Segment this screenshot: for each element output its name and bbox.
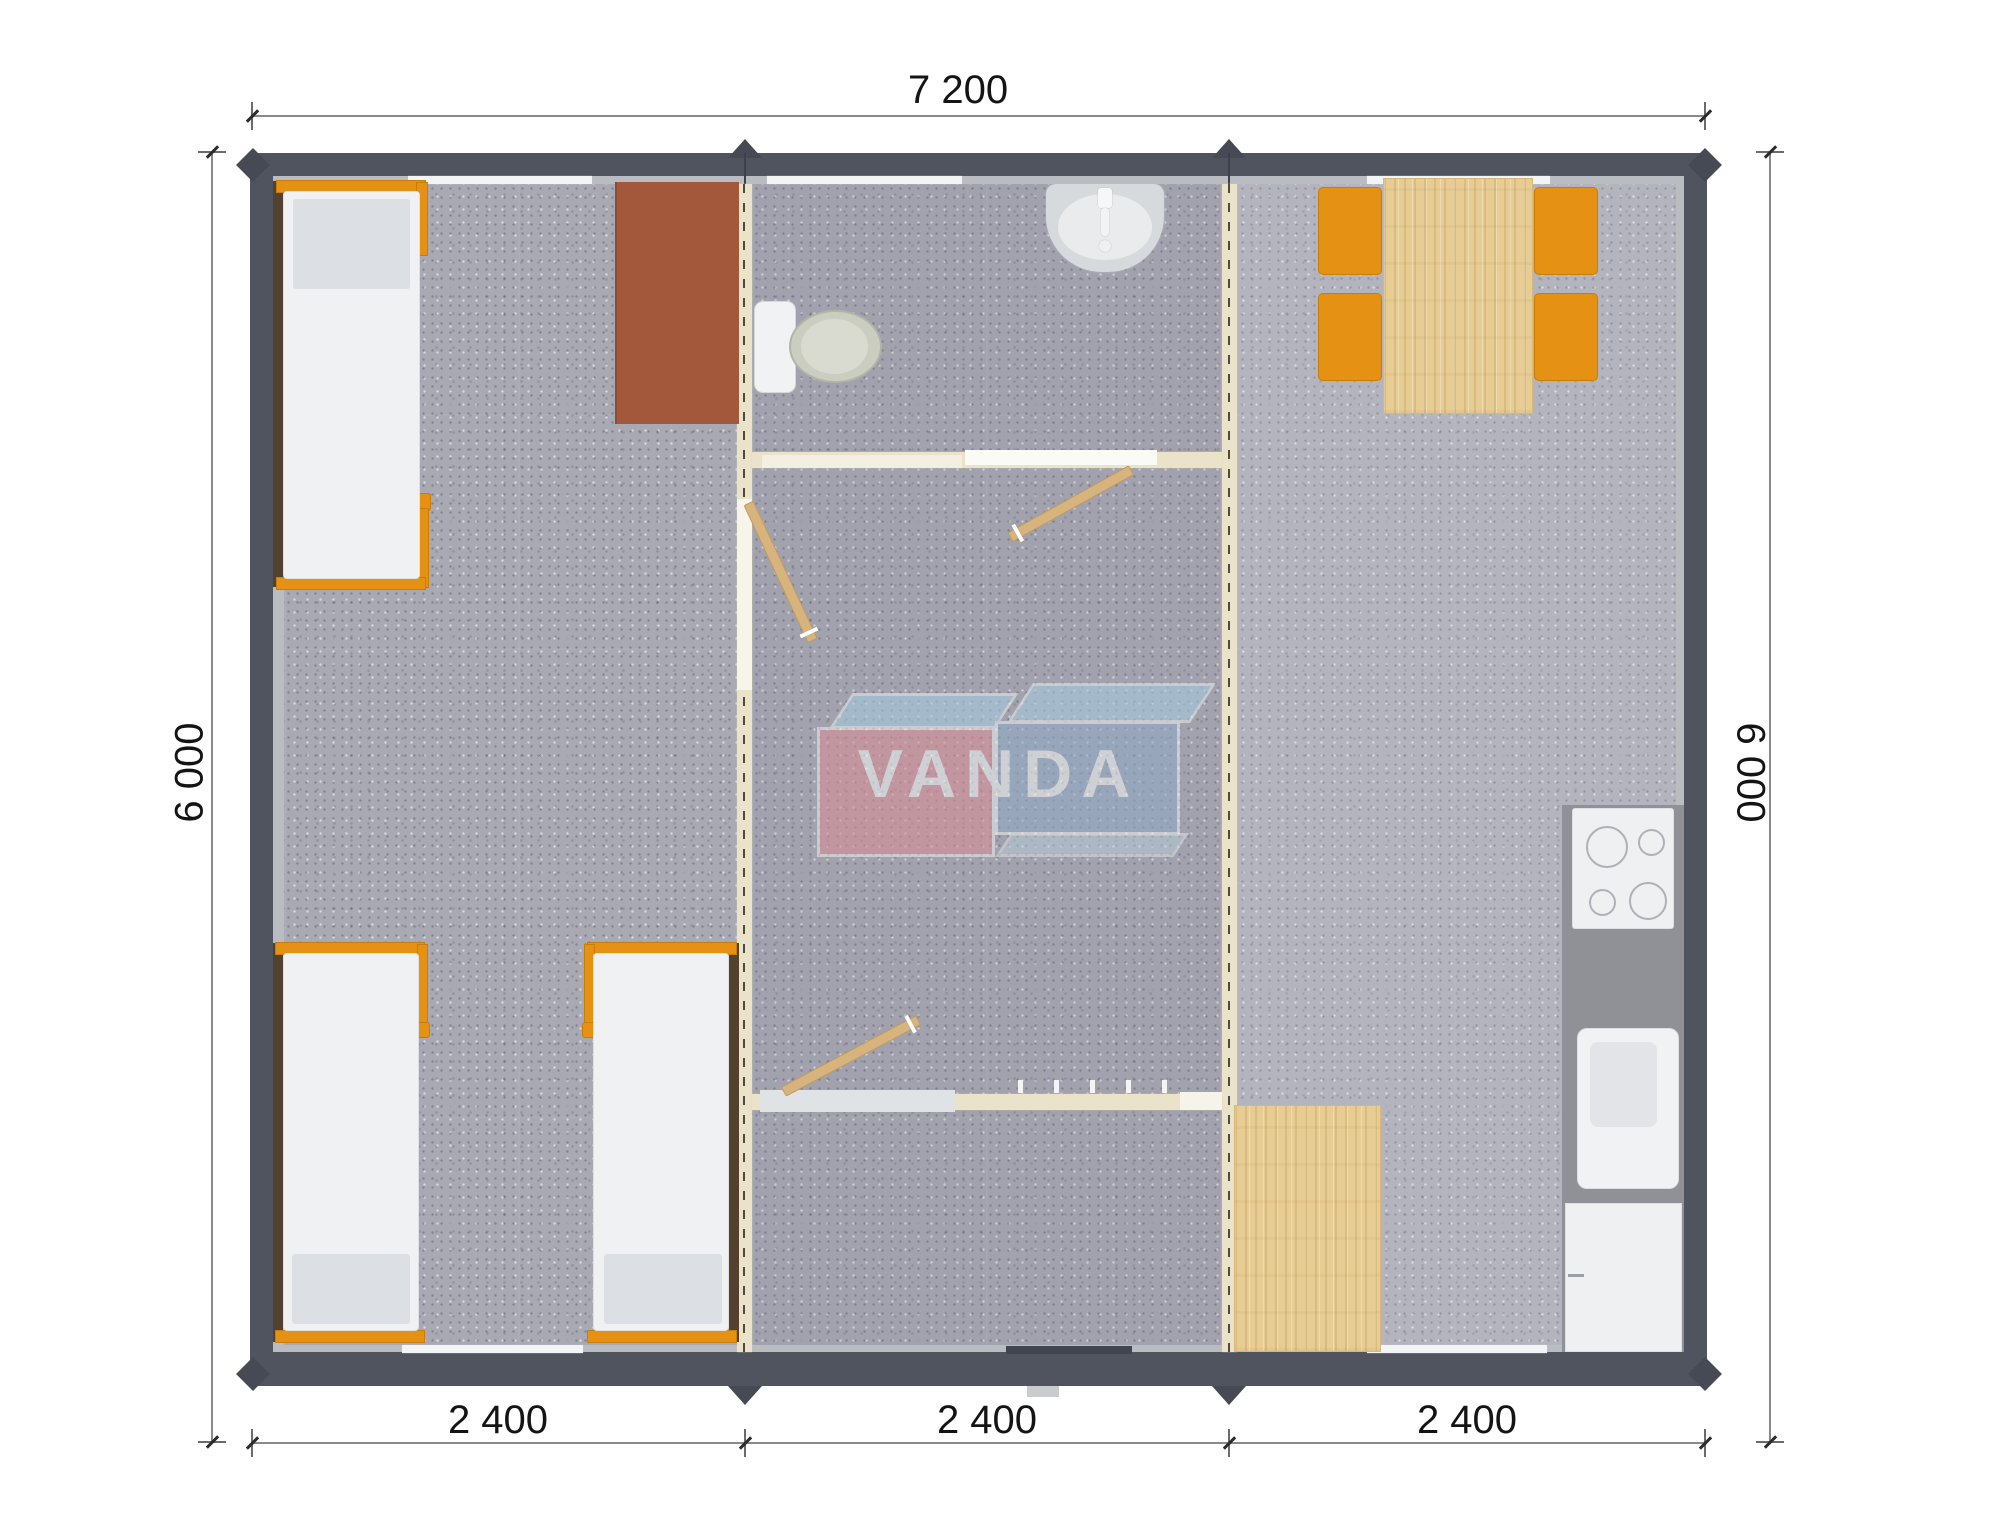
logo-box-top-face	[829, 693, 1018, 729]
partition-left-stud-line	[743, 184, 745, 1352]
module-joint-line	[744, 153, 746, 184]
cooktop	[1572, 808, 1674, 929]
pillow	[293, 199, 410, 289]
bed-headboard-strip	[729, 943, 739, 1342]
bed-frame-bottom-rail	[275, 1330, 425, 1343]
desk	[615, 182, 739, 424]
dining-chair	[1534, 293, 1598, 381]
dimension-label-bottom-3: 2 400	[1397, 1398, 1537, 1443]
logo-text: VANDA	[815, 735, 1182, 813]
toilet-seat	[801, 319, 868, 374]
dimension-label-left: 6 000	[168, 713, 213, 833]
wall-right	[1684, 153, 1707, 1386]
bathroom-wall-track	[762, 455, 962, 468]
window-top-left-room	[408, 176, 592, 184]
door-opening-left-partition	[737, 499, 752, 690]
kitchen-sink	[1577, 1028, 1679, 1189]
bed-headboard-strip	[273, 943, 283, 1342]
module-joint-line	[1228, 153, 1230, 184]
window-bottom-right-room	[1367, 1345, 1547, 1353]
bed-bottom-middle	[583, 940, 739, 1345]
floor-plan: 7 200 6 000 6 000 2 400 2 400 2 400	[0, 0, 2000, 1537]
faucet	[1098, 188, 1112, 208]
wall-top	[250, 153, 1707, 176]
dining-chair	[1534, 187, 1598, 275]
burner-small	[1638, 829, 1665, 856]
module-joint-marker	[728, 1386, 762, 1405]
coat-hook	[1090, 1080, 1095, 1093]
vanda-logo-watermark: VANDA	[815, 683, 1182, 861]
burner-large	[1586, 826, 1628, 868]
hall-wall-cap	[1180, 1092, 1222, 1110]
window-bottom-left-room	[402, 1345, 583, 1353]
entrance-step	[1027, 1386, 1059, 1397]
coat-hook	[1054, 1080, 1059, 1093]
dimension-line	[252, 115, 1705, 117]
bed-frame-bottom-rail	[587, 1330, 737, 1343]
mattress	[283, 191, 420, 579]
partition-right-stud-line	[1228, 184, 1230, 1352]
bed-bottom-left	[273, 940, 429, 1345]
dimension-label-top: 7 200	[908, 68, 1008, 113]
entrance-door-sill	[1006, 1346, 1132, 1354]
dimension-label-bottom-2: 2 400	[917, 1398, 1057, 1443]
coat-hook	[1162, 1080, 1167, 1093]
drain	[1099, 240, 1111, 252]
mattress	[283, 953, 419, 1331]
burner-large	[1629, 882, 1667, 920]
dimension-label-right: 6 000	[1728, 713, 1773, 833]
module-joint-marker	[1212, 1386, 1246, 1405]
wall-bottom	[250, 1352, 1707, 1386]
logo-box-bottom-face	[995, 833, 1189, 857]
coat-hook	[1018, 1080, 1023, 1093]
bathroom-wall-lintel	[965, 450, 1157, 465]
base-cabinet	[1565, 1203, 1682, 1352]
pillow	[604, 1254, 722, 1324]
wood-floor-mat	[1234, 1105, 1381, 1352]
kitchen-sink-basin	[1590, 1042, 1657, 1127]
bed-top-left	[273, 178, 429, 590]
cabinet-handle	[1568, 1274, 1584, 1277]
pillow	[292, 1254, 410, 1324]
burner-small	[1589, 889, 1616, 916]
dining-table	[1383, 178, 1533, 414]
dining-chair	[1318, 187, 1382, 275]
window-top-middle-room	[767, 176, 962, 184]
mattress	[593, 953, 729, 1331]
faucet-stem	[1101, 208, 1109, 236]
logo-box-top-face	[1007, 683, 1216, 723]
wall-left	[250, 153, 273, 1386]
dimension-label-bottom-1: 2 400	[428, 1398, 568, 1443]
coat-hook	[1126, 1080, 1131, 1093]
dining-chair	[1318, 293, 1382, 381]
